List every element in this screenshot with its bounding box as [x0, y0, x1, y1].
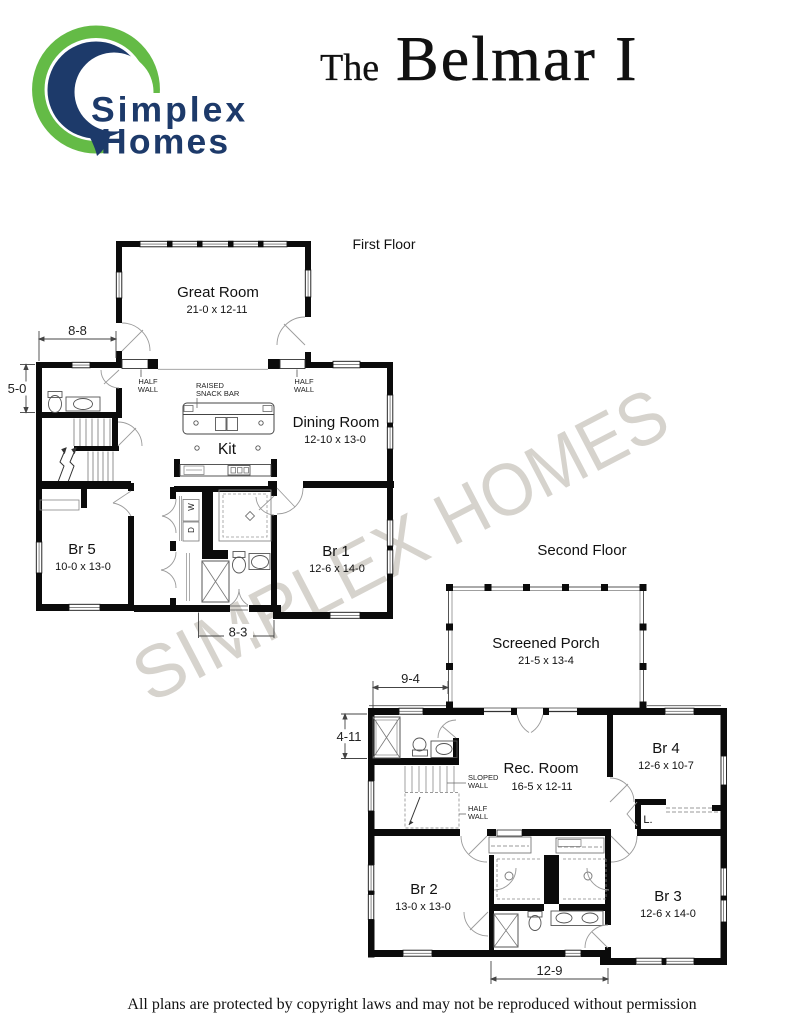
svg-text:D: D — [187, 527, 196, 533]
svg-text:8-3: 8-3 — [229, 625, 248, 640]
svg-text:Rec. Room: Rec. Room — [503, 760, 578, 777]
svg-text:12-10 x 13-0: 12-10 x 13-0 — [304, 434, 366, 446]
svg-text:WALL: WALL — [294, 385, 314, 394]
svg-text:13-0 x 13-0: 13-0 x 13-0 — [395, 901, 451, 913]
svg-text:Br 3: Br 3 — [654, 888, 682, 905]
svg-text:12-6 x 14-0: 12-6 x 14-0 — [640, 908, 696, 920]
svg-text:SNACK BAR: SNACK BAR — [196, 389, 240, 398]
svg-text:Kit: Kit — [218, 441, 237, 458]
svg-text:W: W — [187, 503, 196, 511]
svg-text:First Floor: First Floor — [353, 236, 416, 252]
svg-text:12-9: 12-9 — [536, 963, 562, 978]
svg-text:Homes: Homes — [101, 122, 230, 162]
svg-text:Br 1: Br 1 — [322, 543, 350, 560]
svg-text:4-11: 4-11 — [336, 729, 361, 744]
svg-text:L.: L. — [643, 814, 652, 826]
svg-text:All plans are protected by cop: All plans are protected by copyright law… — [127, 996, 696, 1013]
svg-text:Dining Room: Dining Room — [293, 414, 380, 431]
svg-text:The: The — [320, 47, 379, 89]
svg-text:5-0: 5-0 — [8, 381, 27, 396]
svg-text:HOMES: HOMES — [421, 372, 681, 561]
svg-text:Second Floor: Second Floor — [537, 542, 626, 559]
svg-text:8-8: 8-8 — [68, 323, 87, 338]
svg-text:21-5 x 13-4: 21-5 x 13-4 — [518, 655, 574, 667]
svg-text:Br 4: Br 4 — [652, 740, 680, 757]
svg-text:16-5 x 12-11: 16-5 x 12-11 — [512, 781, 573, 793]
svg-text:12-6 x 10-7: 12-6 x 10-7 — [638, 760, 694, 772]
svg-text:10-0 x 13-0: 10-0 x 13-0 — [55, 561, 111, 573]
svg-text:Screened Porch: Screened Porch — [492, 635, 600, 652]
svg-text:21-0 x 12-11: 21-0 x 12-11 — [187, 304, 248, 316]
svg-text:WALL: WALL — [138, 385, 158, 394]
svg-text:Great Room: Great Room — [177, 284, 259, 301]
svg-text:Br 5: Br 5 — [68, 541, 96, 558]
svg-text:12-6 x 14-0: 12-6 x 14-0 — [309, 563, 365, 575]
svg-text:9-4: 9-4 — [401, 671, 420, 686]
svg-text:Br 2: Br 2 — [410, 881, 438, 898]
svg-text:Belmar I: Belmar I — [396, 23, 639, 94]
svg-text:WALL: WALL — [468, 781, 488, 790]
svg-text:WALL: WALL — [468, 812, 488, 821]
